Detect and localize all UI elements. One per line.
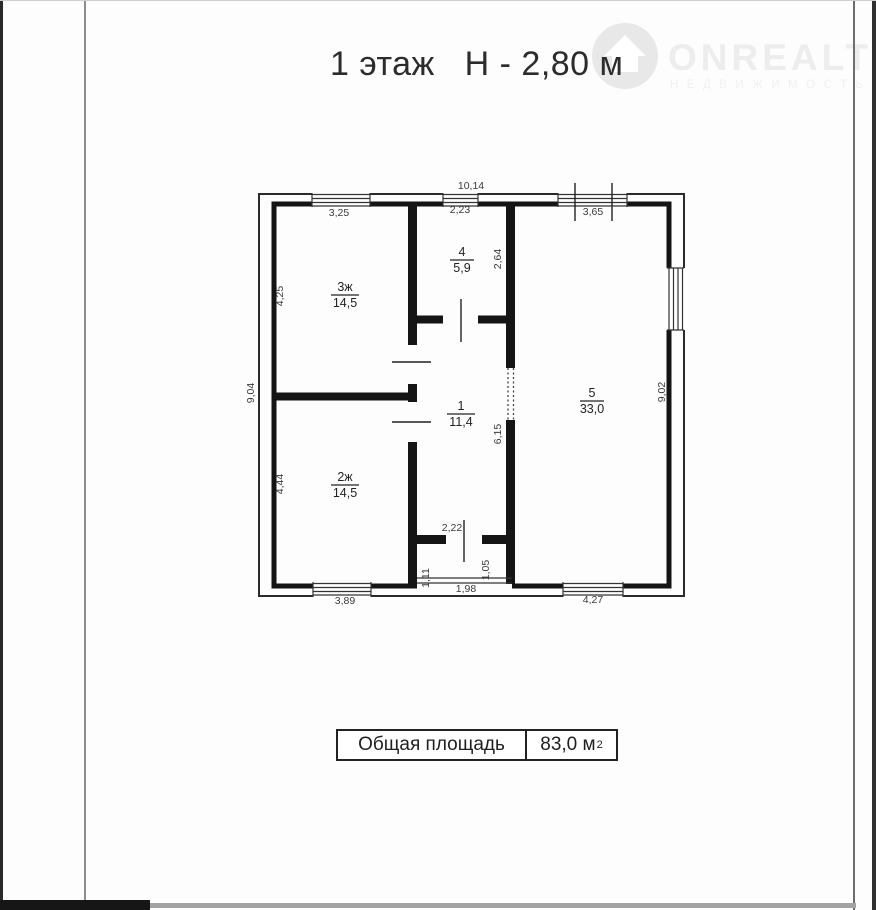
svg-text:3ж: 3ж bbox=[337, 280, 353, 294]
scan-right-margin-line bbox=[853, 0, 855, 910]
svg-text:33,0: 33,0 bbox=[580, 402, 604, 416]
total-area-number: 83,0 м bbox=[540, 734, 595, 756]
dim-top-mid: 2,23 bbox=[450, 204, 471, 216]
interior-walls bbox=[274, 206, 515, 584]
dim-porch-width: 1,98 bbox=[456, 583, 477, 595]
scanned-page: ONREALT НЕДВИЖИМОСТЬ 1 этаж Н - 2,80 м bbox=[0, 0, 876, 910]
total-area-label: Общая площадь bbox=[338, 731, 527, 759]
svg-text:5,9: 5,9 bbox=[453, 261, 470, 275]
dim-bottom-left: 3,89 bbox=[335, 595, 356, 607]
room-label-5: 5 33,0 bbox=[580, 386, 604, 416]
room-label-2: 2ж 14,5 bbox=[331, 470, 359, 500]
scan-right-edge-line bbox=[872, 0, 876, 910]
scan-top-line bbox=[0, 0, 876, 1]
dim-top-total: 10,14 bbox=[458, 180, 484, 192]
room-labels: 3ж 14,5 4 5,9 1 11,4 2ж 14,5 5 bbox=[331, 245, 604, 500]
room-label-4: 4 5,9 bbox=[450, 245, 474, 275]
dim-room3-height: 4,25 bbox=[274, 286, 286, 307]
svg-text:4: 4 bbox=[459, 245, 466, 259]
dim-top-right: 3,65 bbox=[583, 206, 604, 218]
svg-text:5: 5 bbox=[589, 386, 596, 400]
window bbox=[665, 268, 687, 330]
dim-porch-right: 1,05 bbox=[480, 560, 492, 581]
scan-bottom-line bbox=[150, 903, 856, 908]
total-area-value: 83,0 м2 bbox=[527, 731, 616, 759]
svg-text:11,4: 11,4 bbox=[449, 415, 472, 429]
dim-entry-width: 2,22 bbox=[442, 522, 463, 534]
scan-left-edge-line bbox=[0, 0, 3, 910]
room-label-3: 3ж 14,5 bbox=[331, 280, 359, 310]
scan-bottom-bar bbox=[0, 900, 150, 910]
svg-text:1: 1 bbox=[458, 399, 465, 413]
dim-room4-height: 2,64 bbox=[492, 249, 504, 270]
scan-left-margin-line bbox=[84, 0, 86, 910]
dim-bottom-right: 4,27 bbox=[583, 594, 604, 606]
svg-text:14,5: 14,5 bbox=[333, 296, 357, 310]
dim-top-left: 3,25 bbox=[329, 207, 350, 219]
dim-left-total: 9,04 bbox=[245, 383, 257, 404]
opening-dashed bbox=[508, 368, 514, 420]
room-label-1: 1 11,4 bbox=[447, 399, 475, 429]
floor-plan: 10,14 3,25 2,23 3,65 4,25 9,04 4,44 2,64… bbox=[0, 0, 876, 910]
svg-text:2ж: 2ж bbox=[337, 470, 353, 484]
dim-right-total: 9,02 bbox=[656, 382, 668, 403]
svg-text:14,5: 14,5 bbox=[333, 486, 357, 500]
dim-porch-left: 1,11 bbox=[420, 568, 432, 588]
dim-hall-height: 6,15 bbox=[492, 424, 504, 445]
total-area-table: Общая площадь 83,0 м2 bbox=[336, 729, 618, 761]
dim-room2-height: 4,44 bbox=[274, 474, 286, 495]
